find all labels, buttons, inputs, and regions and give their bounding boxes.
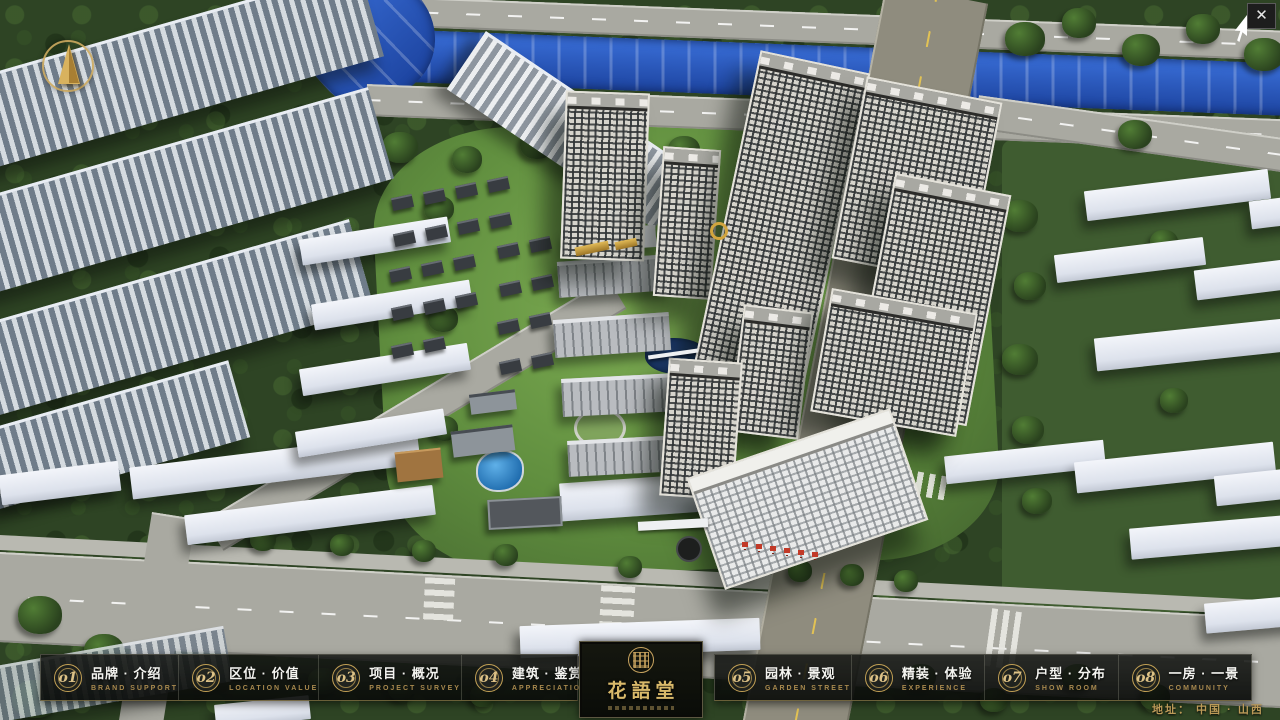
nav-label: 一房 · 一景 (1169, 663, 1240, 682)
t (1022, 488, 1052, 514)
t (452, 146, 482, 173)
labels: 一房 · 一景COMMUNITY (1169, 663, 1240, 692)
nav-number-badge: o5 (728, 664, 756, 692)
labels: 精装 · 体验EXPERIENCE (902, 663, 973, 692)
close-button[interactable]: ✕ (1247, 3, 1276, 29)
t (1118, 120, 1152, 149)
nav-subtitle: GARDEN STREET (765, 685, 851, 692)
flag (756, 544, 762, 549)
labels: 园林 · 景观GARDEN STREET (765, 663, 851, 692)
building (561, 373, 679, 417)
nav-item-room-views[interactable]: o8 一房 · 一景COMMUNITY (1118, 655, 1251, 700)
nav-subtitle: SHOW ROOM (1035, 685, 1106, 692)
roof (664, 148, 719, 168)
nav-label: 精装 · 体验 (902, 663, 973, 682)
project-address: 地址： 中国 · 山西 (1152, 701, 1264, 717)
nav-subtitle: BRAND SUPPORT (91, 685, 178, 692)
num: o2 (197, 671, 216, 685)
brand-seal-icon (628, 647, 654, 673)
labels: 项目 · 概况PROJECT SURVEY (369, 663, 461, 692)
t (1186, 14, 1220, 44)
nav-label: 户型 · 分布 (1035, 663, 1106, 682)
num: o8 (1136, 671, 1155, 685)
compass-icon (40, 38, 98, 96)
nav-number-badge: o1 (54, 664, 82, 692)
roof (670, 360, 741, 381)
nav-subtitle: EXPERIENCE (902, 685, 973, 692)
labels: 区位 · 价值LOCATION VALUE (229, 663, 318, 692)
nav-subtitle: LOCATION VALUE (229, 685, 318, 692)
num: o5 (732, 671, 751, 685)
num: o1 (58, 671, 77, 685)
t (1122, 34, 1160, 66)
brand-logo-panel: 花語堂 (579, 641, 703, 718)
flag (742, 542, 748, 547)
nav-item-floorplans[interactable]: o7 户型 · 分布SHOW ROOM (984, 655, 1117, 700)
labels: 户型 · 分布SHOW ROOM (1035, 663, 1106, 692)
t (412, 540, 436, 562)
t (330, 534, 354, 556)
t (1244, 38, 1280, 71)
t (1062, 8, 1096, 38)
nav-item-location-value[interactable]: o2 区位 · 价值LOCATION VALUE (178, 655, 318, 700)
building (553, 312, 671, 358)
num: o3 (337, 671, 356, 685)
nav-label: 区位 · 价值 (229, 663, 318, 682)
presentation-screen: ✕ o1 品牌 · 介绍BRAND SUPPORT o2 区位 · 价值LOCA… (0, 0, 1280, 720)
nav-subtitle: APPRECIATION (512, 685, 588, 692)
compass-arrow-shade (69, 46, 79, 83)
nav-number-badge: o8 (1132, 664, 1160, 692)
main-gate-plaza (676, 536, 702, 562)
num: o4 (479, 671, 498, 685)
crosswalk (423, 577, 455, 625)
nav-label: 品牌 · 介绍 (91, 663, 178, 682)
residential-tower (653, 146, 721, 300)
brand-name: 花語堂 (602, 676, 679, 703)
nav-number-badge: o4 (475, 664, 503, 692)
labels: 建筑 · 鉴赏APPRECIATION (512, 663, 588, 692)
nav-subtitle: PROJECT SURVEY (369, 685, 461, 692)
t (1005, 22, 1045, 56)
t (894, 570, 918, 592)
nav-band-left: o1 品牌 · 介绍BRAND SUPPORT o2 区位 · 价值LOCATI… (40, 654, 578, 701)
gold-art-feature (710, 222, 728, 240)
flag (770, 546, 776, 551)
brand-caption-rule (608, 706, 674, 710)
flag (798, 550, 804, 555)
nav-item-brand-intro[interactable]: o1 品牌 · 介绍BRAND SUPPORT (41, 655, 178, 700)
roof (567, 93, 648, 112)
nav-label: 建筑 · 鉴赏 (512, 663, 588, 682)
num: o6 (869, 671, 888, 685)
seal-pattern (633, 652, 649, 668)
flag (812, 552, 818, 557)
nav-band-right: o5 园林 · 景观GARDEN STREET o6 精装 · 体验EXPERI… (714, 654, 1252, 701)
flag (784, 548, 790, 553)
nav-item-garden-landscape[interactable]: o5 园林 · 景观GARDEN STREET (715, 655, 851, 700)
labels: 品牌 · 介绍BRAND SUPPORT (91, 663, 178, 692)
nav-number-badge: o7 (998, 664, 1026, 692)
t (1014, 272, 1046, 300)
nav-item-project-survey[interactable]: o3 项目 · 概况PROJECT SURVEY (318, 655, 461, 700)
t (618, 556, 642, 578)
residential-tower (560, 91, 650, 262)
residential-tower (810, 288, 977, 437)
nav-item-architecture[interactable]: o4 建筑 · 鉴赏APPRECIATION (461, 655, 588, 700)
num: o7 (1003, 671, 1022, 685)
nav-label: 项目 · 概况 (369, 663, 461, 682)
nav-subtitle: COMMUNITY (1169, 685, 1240, 692)
nav-label: 园林 · 景观 (765, 663, 851, 682)
swimming-pool (476, 450, 524, 492)
masterplan-3d-view[interactable] (0, 0, 1280, 720)
nav-number-badge: o2 (192, 664, 220, 692)
building (395, 448, 444, 483)
t (494, 544, 518, 566)
nav-item-interior-experience[interactable]: o6 精装 · 体验EXPERIENCE (851, 655, 984, 700)
t (1002, 344, 1038, 375)
nav-number-badge: o3 (332, 664, 360, 692)
t (1012, 416, 1044, 444)
t (840, 564, 864, 586)
t (18, 596, 62, 634)
t (1160, 388, 1188, 413)
entry-courtyard (487, 496, 562, 530)
nav-number-badge: o6 (865, 664, 893, 692)
